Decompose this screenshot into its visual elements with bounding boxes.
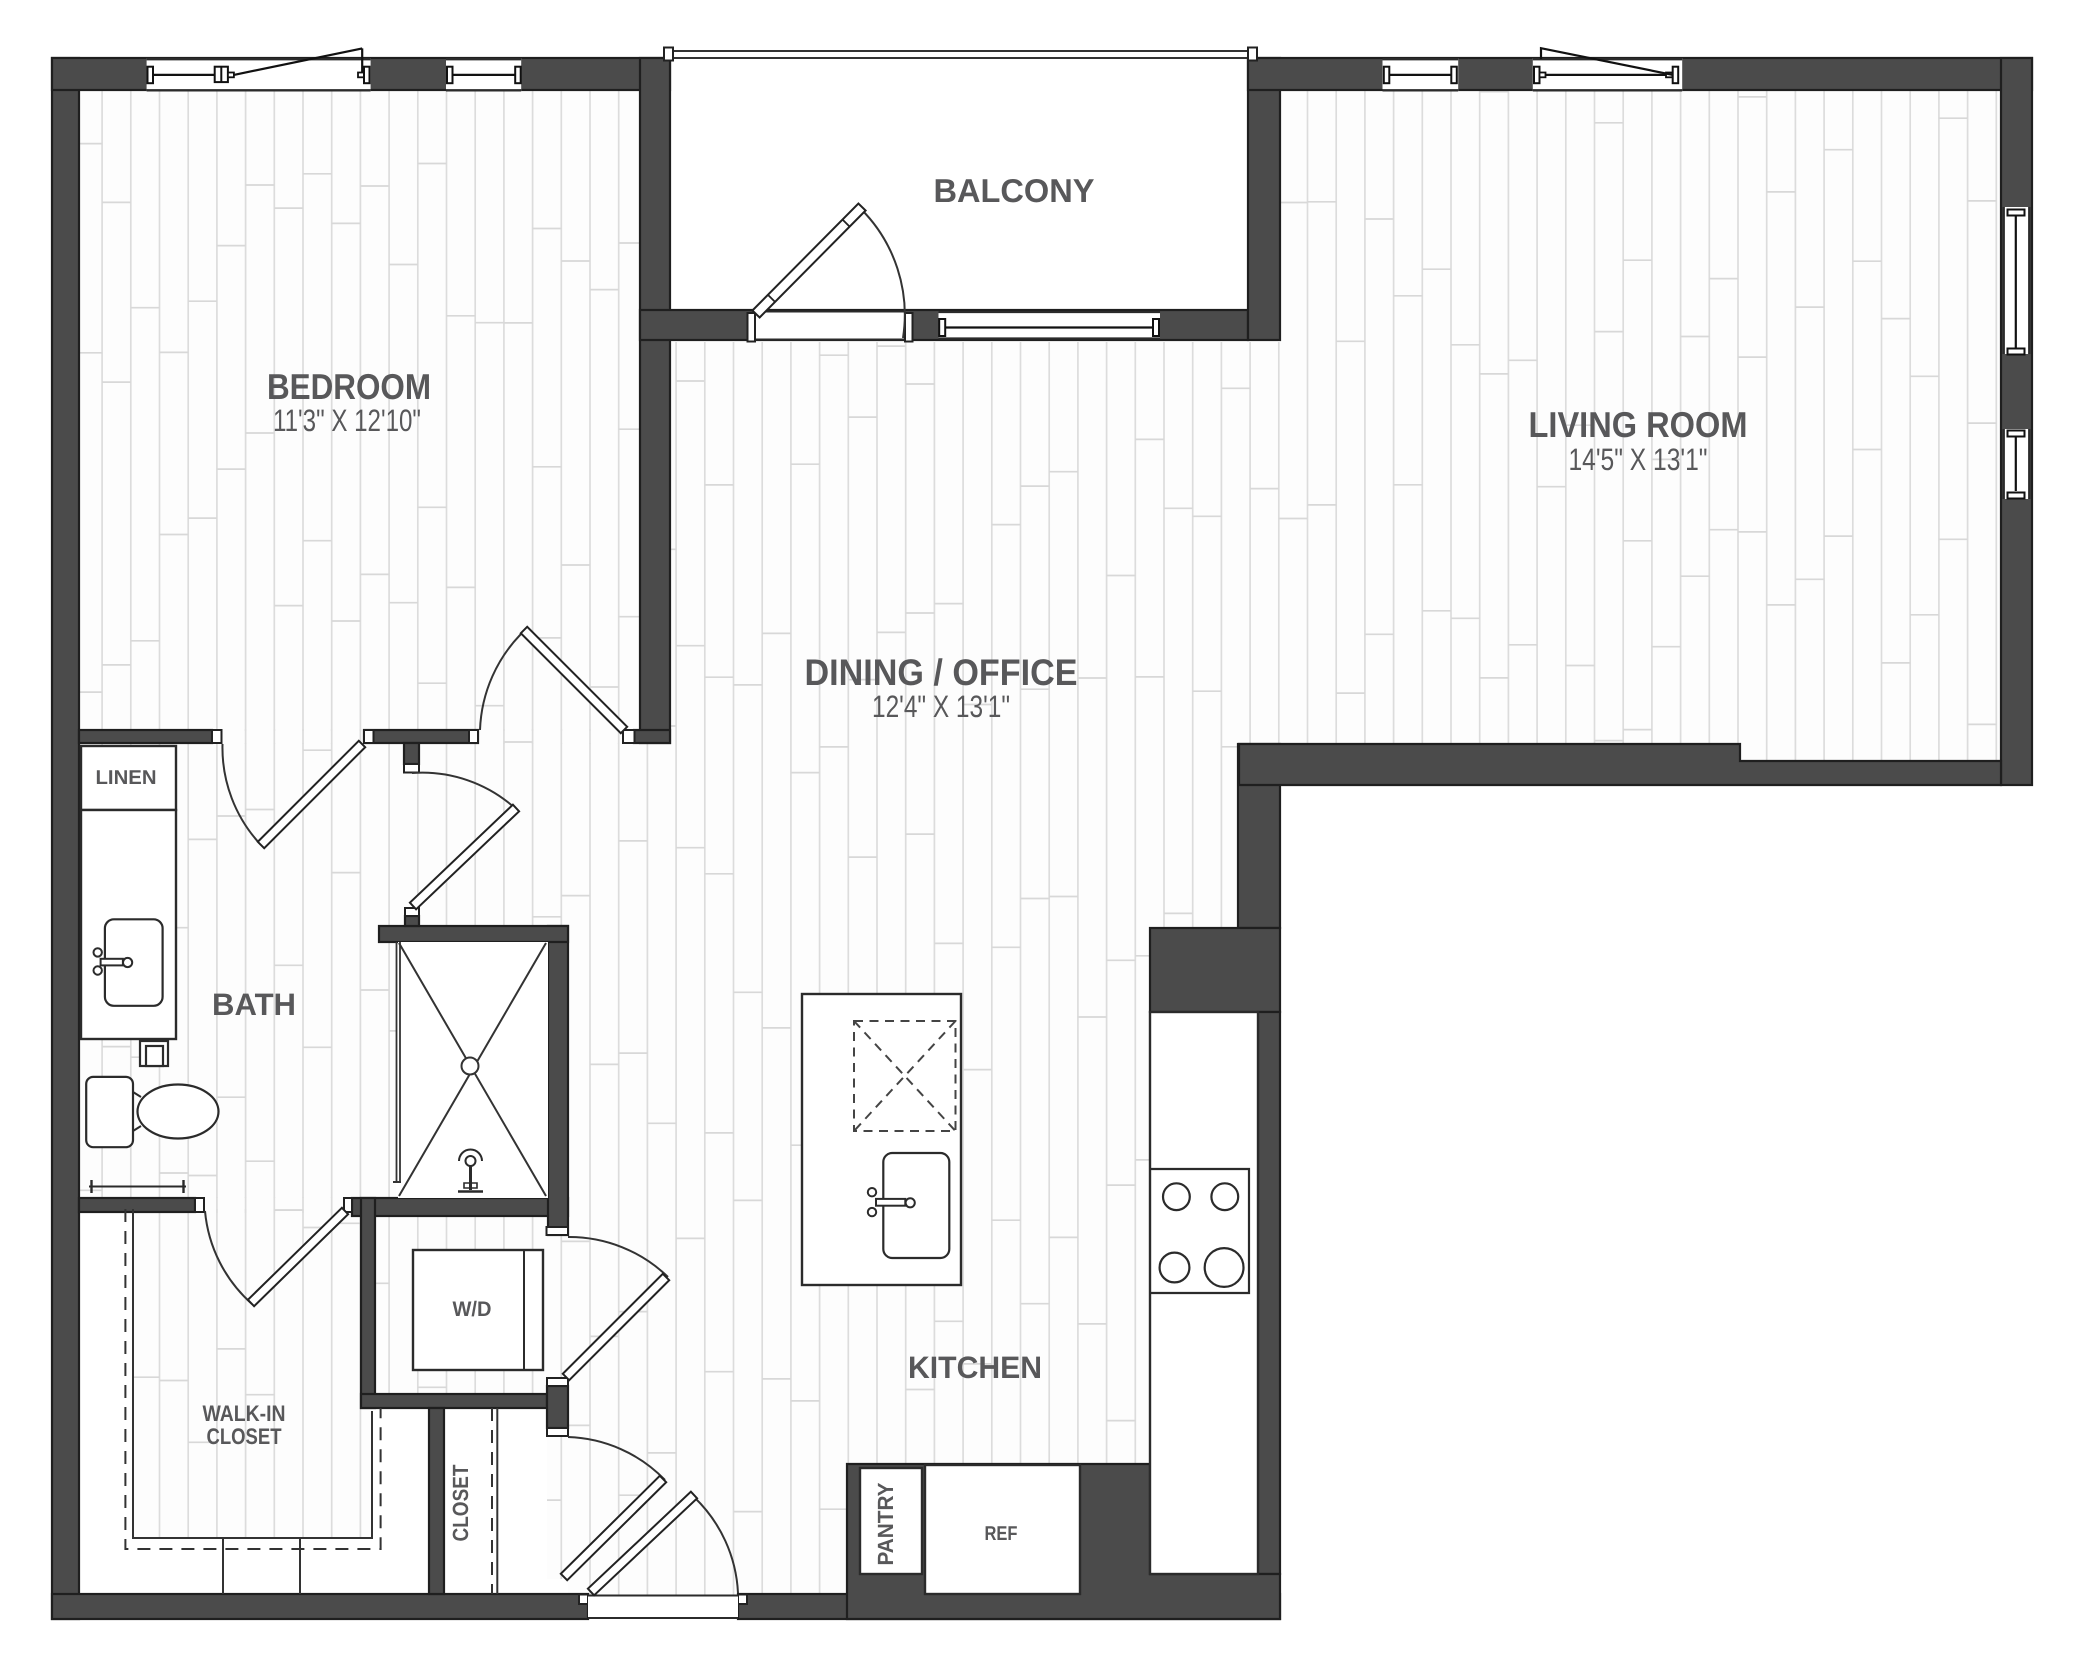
svg-text:BATH: BATH (212, 987, 296, 1022)
svg-text:11'3" X 12'10": 11'3" X 12'10" (273, 403, 421, 438)
svg-text:W/D: W/D (453, 1298, 492, 1321)
svg-text:WALK-IN: WALK-IN (203, 1401, 286, 1426)
svg-text:LINEN: LINEN (96, 767, 157, 789)
svg-text:PANTRY: PANTRY (873, 1482, 898, 1565)
svg-text:DINING / OFFICE: DINING / OFFICE (805, 652, 1078, 693)
svg-text:REF: REF (985, 1523, 1018, 1545)
svg-text:BALCONY: BALCONY (934, 172, 1095, 209)
svg-text:CLOSET: CLOSET (448, 1464, 473, 1541)
svg-text:BEDROOM: BEDROOM (267, 366, 431, 407)
svg-text:LIVING ROOM: LIVING ROOM (1529, 404, 1748, 445)
svg-text:KITCHEN: KITCHEN (908, 1350, 1042, 1385)
svg-text:14'5" X 13'1": 14'5" X 13'1" (1569, 442, 1708, 477)
svg-text:12'4" X 13'1": 12'4" X 13'1" (872, 689, 1010, 724)
svg-text:CLOSET: CLOSET (207, 1424, 282, 1449)
